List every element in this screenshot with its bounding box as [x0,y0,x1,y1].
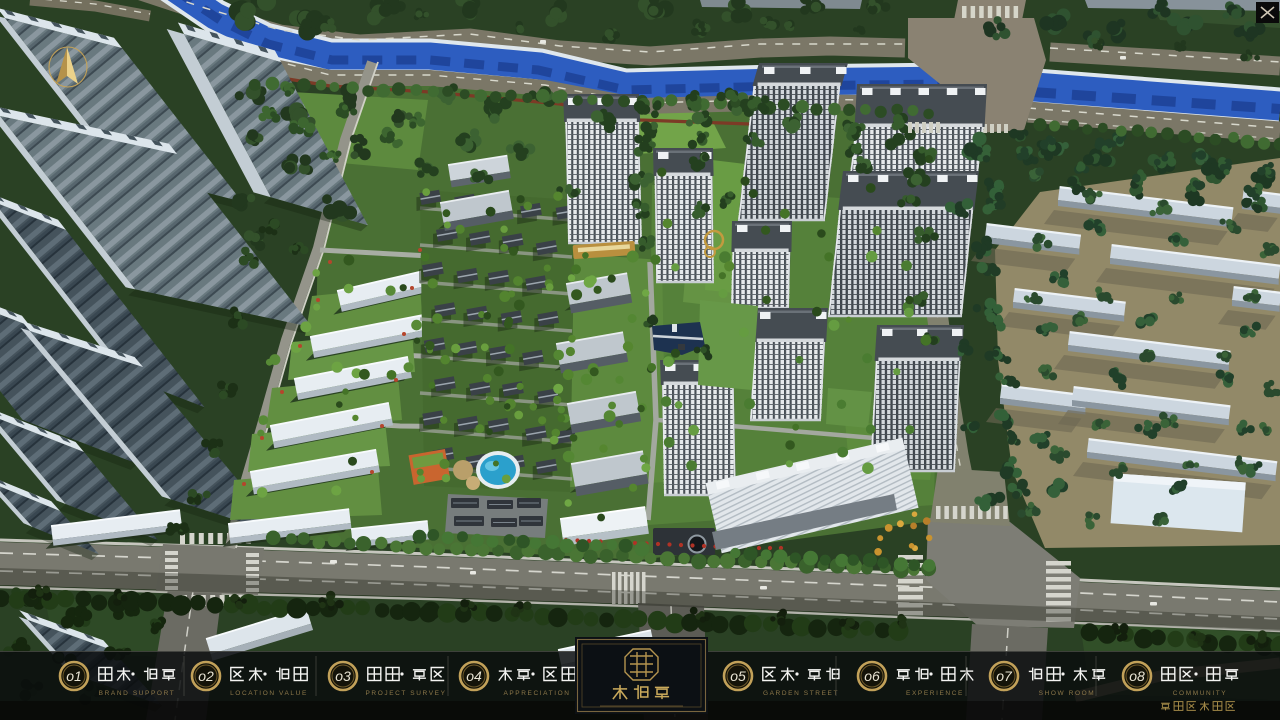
svg-text:o8: o8 [1129,668,1145,684]
svg-text:o4: o4 [466,668,482,684]
svg-text:SHOW ROOM: SHOW ROOM [1039,690,1096,697]
svg-text:o5: o5 [730,668,746,684]
svg-text:PROJECT SURVEY: PROJECT SURVEY [365,690,446,697]
svg-text:EXPERIENCE: EXPERIENCE [906,690,964,697]
svg-text:BRAND SUPPORT: BRAND SUPPORT [99,690,176,697]
svg-text:o6: o6 [864,668,880,684]
svg-text:o7: o7 [996,668,1013,684]
svg-text:GARDEN STREET: GARDEN STREET [763,690,839,697]
svg-text:o2: o2 [198,668,214,684]
svg-text:COMMUNITY: COMMUNITY [1173,690,1227,697]
svg-text:o1: o1 [66,668,82,684]
svg-text:APPRECIATION: APPRECIATION [503,690,570,697]
svg-text:o3: o3 [335,668,351,684]
svg-text:LOCATION VALUE: LOCATION VALUE [230,690,308,697]
